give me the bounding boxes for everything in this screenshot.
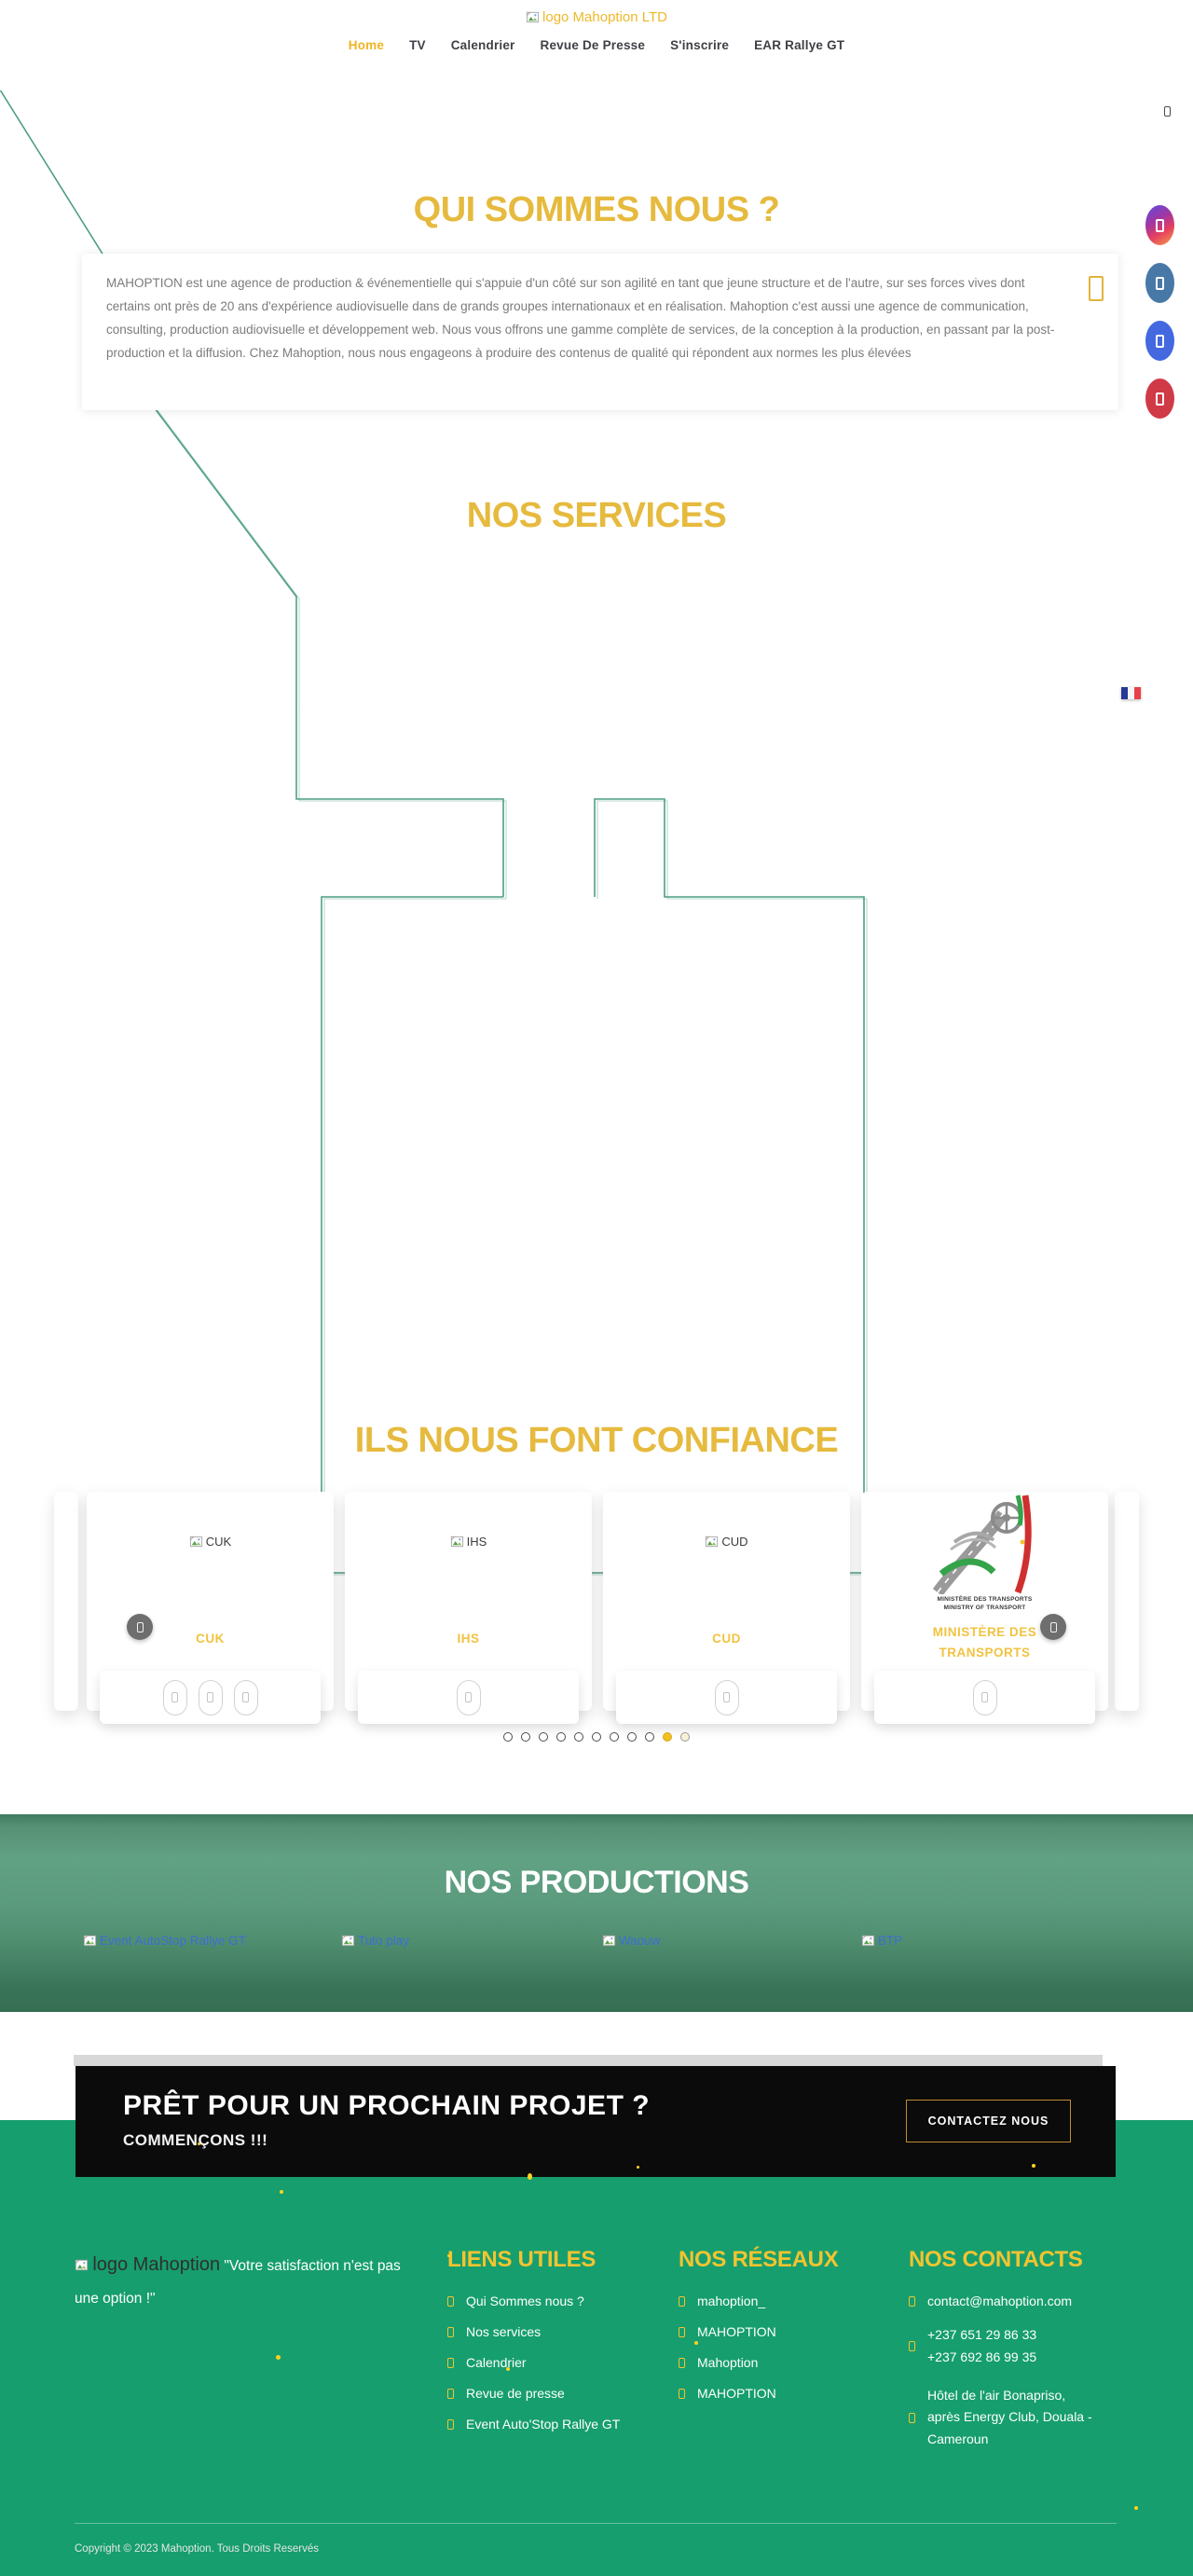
client-social-button[interactable] xyxy=(715,1680,739,1715)
carousel-card-sliver-left xyxy=(54,1492,78,1711)
sparkle-dot xyxy=(637,2166,639,2169)
nav-tv[interactable]: TV xyxy=(409,38,426,52)
carousel-dot[interactable] xyxy=(592,1732,601,1742)
client-card-ministere-transports: MINISTÈRE DES TRANSPORTS MINISTRY OF TRA… xyxy=(861,1492,1108,1711)
footer-link-nos-services[interactable]: Nos services xyxy=(447,2324,662,2339)
carousel-dot[interactable] xyxy=(503,1732,513,1742)
carousel-dot[interactable] xyxy=(627,1732,637,1742)
linkedin-icon[interactable] xyxy=(1145,321,1174,361)
footer-contact-address: Hôtel de l'air Bonapriso,après Energy Cl… xyxy=(909,2385,1132,2451)
footer-logo-alt[interactable]: logo Mahoption xyxy=(92,2254,220,2275)
bullet-icon xyxy=(679,2389,685,2399)
client-social-button[interactable] xyxy=(973,1680,997,1715)
cta-top-strip xyxy=(74,2055,1103,2066)
sparkle-dot xyxy=(528,2173,532,2180)
sparkle-dot xyxy=(506,2367,510,2371)
sparkle-dot xyxy=(276,2355,281,2360)
footer-social-instagram[interactable]: mahoption_ xyxy=(679,2294,893,2308)
site-header: logo Mahoption LTD Home TV Calendrier Re… xyxy=(0,0,1193,90)
copyright-text: Copyright © 2023 Mahoption. Tous Droits … xyxy=(75,2543,319,2555)
youtube-icon[interactable] xyxy=(1145,379,1174,419)
client-broken-image: CUD xyxy=(603,1535,850,1549)
about-slider-next-icon[interactable] xyxy=(1089,276,1104,301)
broken-image-icon xyxy=(602,1934,616,1948)
productions-title: NOS PRODUCTIONS xyxy=(0,1865,1193,1901)
site-footer: logo Mahoption "Votre satisfaction n'est… xyxy=(0,2120,1193,2576)
french-flag-icon[interactable] xyxy=(1121,687,1141,699)
client-label: CUD xyxy=(603,1632,850,1646)
client-card-cud: CUD CUD xyxy=(603,1492,850,1711)
nav-sinscrire[interactable]: S'inscrire xyxy=(670,38,729,52)
footer-liens-utiles: LIENS UTILES Qui Sommes nous ? Nos servi… xyxy=(447,2247,662,2447)
client-label: MINISTÈRE DES TRANSPORTS xyxy=(861,1622,1108,1662)
footer-social-linkedin[interactable]: MAHOPTION xyxy=(679,2386,893,2401)
production-link-waouw[interactable]: Waouw xyxy=(602,1934,661,1948)
carousel-card-sliver-right xyxy=(1115,1492,1139,1711)
production-link-ear[interactable]: Event AutoStop Rallye GT xyxy=(83,1934,246,1948)
carousel-dot[interactable] xyxy=(610,1732,619,1742)
carousel-dot[interactable] xyxy=(539,1732,548,1742)
nav-calendrier[interactable]: Calendrier xyxy=(451,38,515,52)
carousel-dot[interactable] xyxy=(521,1732,530,1742)
broken-image-icon xyxy=(526,10,540,24)
ministry-caption-fr: MINISTÈRE DES TRANSPORTS xyxy=(861,1596,1108,1603)
broken-image-icon xyxy=(341,1934,355,1948)
client-links-card xyxy=(874,1671,1095,1724)
services-title: NOS SERVICES xyxy=(0,496,1193,536)
bullet-icon xyxy=(447,2419,454,2430)
mahoption-homepage: logo Mahoption LTD Home TV Calendrier Re… xyxy=(0,0,1193,2576)
production-link-btp[interactable]: BTP xyxy=(861,1934,902,1948)
broken-image-icon xyxy=(189,1535,203,1549)
cta-subtitle: COMMENÇONS !!! xyxy=(123,2131,267,2150)
broken-image-icon xyxy=(75,2258,89,2272)
client-social-button[interactable] xyxy=(457,1680,481,1715)
ministry-transport-logo xyxy=(928,1494,1040,1594)
social-rail xyxy=(1145,205,1175,419)
client-broken-image: CUK xyxy=(87,1535,334,1549)
bullet-icon xyxy=(447,2358,454,2368)
ministry-caption-en: MINISTRY OF TRANSPORT xyxy=(861,1605,1108,1611)
carousel-next-button[interactable] xyxy=(1040,1614,1066,1640)
phone-icon xyxy=(909,2341,915,2351)
nav-revue-de-presse[interactable]: Revue De Presse xyxy=(541,38,646,52)
cta-title: PRÊT POUR UN PROCHAIN PROJET ? xyxy=(123,2090,650,2122)
carousel-dot[interactable] xyxy=(645,1732,654,1742)
footer-link-revue-de-presse[interactable]: Revue de presse xyxy=(447,2386,662,2401)
footer-brand: logo Mahoption "Votre satisfaction n'est… xyxy=(75,2249,418,2315)
sparkle-dot xyxy=(1032,2164,1035,2168)
nav-home[interactable]: Home xyxy=(349,38,384,52)
client-social-button[interactable] xyxy=(199,1680,223,1715)
location-icon xyxy=(909,2413,915,2423)
client-label: IHS xyxy=(345,1632,592,1646)
about-paragraph: MAHOPTION est une agence de production &… xyxy=(106,272,1063,365)
footer-link-event-rallye[interactable]: Event Auto'Stop Rallye GT xyxy=(447,2417,662,2431)
client-label: CUK xyxy=(87,1632,334,1646)
bullet-icon xyxy=(679,2358,685,2368)
production-link-tuto-play[interactable]: Tuto play xyxy=(341,1934,409,1948)
email-icon xyxy=(909,2296,915,2307)
footer-social-twitter[interactable]: Mahoption xyxy=(679,2355,893,2370)
footer-nos-reseaux: NOS RÉSEAUX mahoption_ MAHOPTION Mahopti… xyxy=(679,2247,893,2417)
client-links-card xyxy=(358,1671,579,1724)
broken-image-icon xyxy=(861,1934,875,1948)
broken-image-icon xyxy=(705,1535,719,1549)
bullet-icon xyxy=(447,2296,454,2307)
bullet-icon xyxy=(447,2327,454,2337)
carousel-dot[interactable] xyxy=(556,1732,566,1742)
logo-link[interactable]: logo Mahoption LTD xyxy=(526,9,667,25)
footer-reseaux-title: NOS RÉSEAUX xyxy=(679,2247,893,2273)
sparkle-dot xyxy=(198,2142,200,2145)
footer-link-calendrier[interactable]: Calendrier xyxy=(447,2355,662,2370)
clients-title: ILS NOUS FONT CONFIANCE xyxy=(0,1421,1193,1461)
carousel-dot[interactable] xyxy=(680,1732,690,1742)
footer-social-facebook[interactable]: MAHOPTION xyxy=(679,2324,893,2339)
nav-ear-rallye-gt[interactable]: EAR Rallye GT xyxy=(754,38,844,52)
broken-image-icon xyxy=(83,1934,97,1948)
sparkle-dot xyxy=(280,2190,283,2194)
client-links-card xyxy=(100,1671,321,1724)
footer-divider xyxy=(75,2523,1117,2524)
cta-banner: PRÊT POUR UN PROCHAIN PROJET ? COMMENÇON… xyxy=(75,2066,1116,2177)
bullet-icon xyxy=(679,2327,685,2337)
footer-link-qui-sommes-nous[interactable]: Qui Sommes nous ? xyxy=(447,2294,662,2308)
footer-contact-email[interactable]: contact@mahoption.com xyxy=(909,2294,1132,2308)
productions-band: NOS PRODUCTIONS Event AutoStop Rallye GT… xyxy=(0,1814,1193,2012)
instagram-icon[interactable] xyxy=(1145,205,1174,245)
footer-contacts-title: NOS CONTACTS xyxy=(909,2247,1132,2273)
main-nav: Home TV Calendrier Revue De Presse S'ins… xyxy=(349,38,844,52)
client-social-button[interactable] xyxy=(163,1680,187,1715)
broken-image-icon xyxy=(450,1535,464,1549)
client-card-ihs: IHS IHS xyxy=(345,1492,592,1711)
logo-alt-text: logo Mahoption LTD xyxy=(542,9,667,25)
footer-liens-title: LIENS UTILES xyxy=(447,2247,662,2273)
carousel-dots xyxy=(0,1732,1193,1742)
about-card: MAHOPTION est une agence de production &… xyxy=(82,254,1118,410)
carousel-dot[interactable] xyxy=(574,1732,583,1742)
footer-contact-phone[interactable]: +237 651 29 86 33+237 692 86 99 35 xyxy=(909,2324,1132,2369)
sparkle-dot xyxy=(694,2341,698,2345)
about-title: QUI SOMMES NOUS ? xyxy=(0,190,1193,230)
client-social-button[interactable] xyxy=(234,1680,258,1715)
sparkle-dot xyxy=(1134,2506,1138,2510)
contactez-nous-button[interactable]: CONTACTEZ NOUS xyxy=(906,2100,1071,2142)
client-broken-image: IHS xyxy=(345,1535,592,1549)
sparkle-dot xyxy=(447,2254,450,2257)
client-links-card xyxy=(616,1671,837,1724)
carousel-dot-active[interactable] xyxy=(663,1732,672,1742)
carousel-prev-button[interactable] xyxy=(127,1614,153,1640)
hero-toggle-icon[interactable] xyxy=(1164,106,1171,117)
client-card-cuk: CUK CUK xyxy=(87,1492,334,1711)
bullet-icon xyxy=(447,2389,454,2399)
bullet-icon xyxy=(679,2296,685,2307)
footer-nos-contacts: NOS CONTACTS contact@mahoption.com +237 … xyxy=(909,2247,1132,2467)
facebook-icon[interactable] xyxy=(1145,263,1174,303)
